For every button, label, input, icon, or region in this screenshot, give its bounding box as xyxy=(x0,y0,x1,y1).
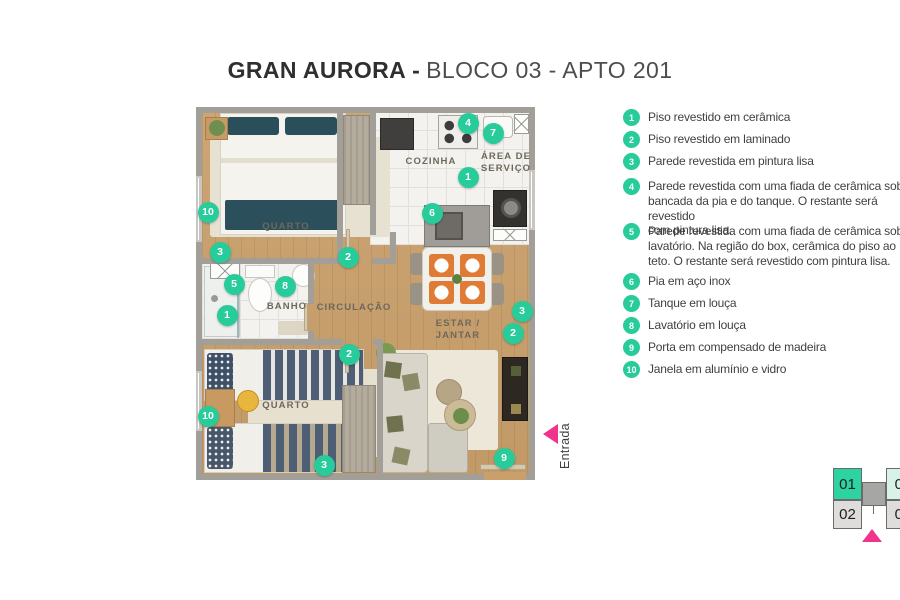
sofa-pillow xyxy=(402,373,421,392)
shower-drain xyxy=(211,295,218,302)
legend-number-badge: 3 xyxy=(623,153,640,170)
washing-machine xyxy=(493,190,527,227)
wall xyxy=(372,258,396,264)
sofa-pillow xyxy=(384,361,402,379)
bed-sheet-fold xyxy=(221,158,345,163)
legend-text: Parede revestida em pintura lisa xyxy=(648,154,814,169)
dining-chair xyxy=(490,253,504,275)
tv-rack-decor xyxy=(511,366,521,376)
wall xyxy=(370,113,376,235)
entrance-label: Entrada xyxy=(558,409,572,469)
window-service xyxy=(529,170,535,230)
legend-text: Parede revestida com uma fiada de cerâmi… xyxy=(648,224,900,268)
washer-drum xyxy=(501,198,521,218)
plan-marker-3: 3 xyxy=(314,455,335,476)
legend-text: Piso revestido em laminado xyxy=(648,132,790,147)
keyplan-unit-01[interactable]: 01 xyxy=(833,468,862,500)
legend-item: 8Lavatório em louça xyxy=(623,317,900,334)
fridge xyxy=(380,118,414,150)
legend-item: 5Parede revestida com uma fiada de cerâm… xyxy=(623,223,900,268)
bed-pillow xyxy=(227,117,279,135)
single-bed-2 xyxy=(204,423,364,473)
legend-item: 3Parede revestida em pintura lisa xyxy=(623,153,900,170)
room-label: ÁREA DE SERVIÇO xyxy=(481,151,531,175)
legend-number-badge: 4 xyxy=(623,178,640,195)
keyplan-unit-02[interactable]: 02 xyxy=(833,500,862,529)
legend-number-badge: 2 xyxy=(623,131,640,148)
title-project-name: GRAN AURORA - xyxy=(228,57,421,83)
legend-item: 2Piso revestido em laminado xyxy=(623,131,900,148)
entrance-arrow-icon xyxy=(543,424,558,444)
room-label: QUARTO xyxy=(262,400,310,412)
plan-marker-9: 9 xyxy=(494,448,515,469)
plan-marker-10: 10 xyxy=(198,406,219,427)
place-setting xyxy=(460,254,485,277)
room-label: QUARTO xyxy=(262,221,310,233)
plan-marker-3: 3 xyxy=(512,301,533,322)
plan-marker-3: 3 xyxy=(210,242,231,263)
plan-marker-7: 7 xyxy=(483,123,504,144)
plant-bedroom1 xyxy=(209,120,225,136)
room-label: BANHO xyxy=(267,301,307,313)
plan-marker-2: 2 xyxy=(339,344,360,365)
plan-marker-8: 8 xyxy=(275,276,296,297)
dining-table xyxy=(422,247,492,311)
legend-number-badge: 1 xyxy=(623,109,640,126)
legend-number-badge: 9 xyxy=(623,339,640,356)
legend-number-badge: 8 xyxy=(623,317,640,334)
legend-item: 10Janela em alumínio e vidro xyxy=(623,361,900,378)
legend-item: 1Piso revestido em cerâmica xyxy=(623,109,900,126)
plan-marker-1: 1 xyxy=(217,305,238,326)
plan-marker-5: 5 xyxy=(224,274,245,295)
double-bed xyxy=(220,113,346,235)
legend-text: Pia em aço inox xyxy=(648,274,730,289)
page-title: GRAN AURORA -BLOCO 03 - APTO 201 xyxy=(0,57,900,84)
wall xyxy=(377,345,383,474)
wardrobe-bedroom2 xyxy=(342,385,376,473)
title-unit-info: BLOCO 03 - APTO 201 xyxy=(426,57,672,83)
legend-item: 9Porta em compensado de madeira xyxy=(623,339,900,356)
keyplan-core-block xyxy=(862,482,886,506)
sofa-pillow xyxy=(392,447,411,466)
cabinet-xbox-washer xyxy=(493,229,527,241)
coffee-table-large xyxy=(444,399,476,431)
legend-number-badge: 5 xyxy=(623,223,640,240)
sofa-pillow xyxy=(386,415,404,433)
desk-chair-yellow xyxy=(237,390,259,412)
sofa xyxy=(378,353,428,473)
toilet-tank xyxy=(245,265,275,278)
tv-rack-decor xyxy=(511,404,521,414)
legend-text: Tanque em louça xyxy=(648,296,736,311)
room-label: CIRCULAÇÃO xyxy=(317,302,392,314)
legend-number-badge: 10 xyxy=(623,361,640,378)
wall xyxy=(337,113,343,264)
legend-text: Janela em alumínio e vidro xyxy=(648,362,786,377)
plant-coffee-table xyxy=(453,408,469,424)
legend-item: 7Tanque em louça xyxy=(623,295,900,312)
legend-item: 6Pia em aço inox xyxy=(623,273,900,290)
plan-marker-1: 1 xyxy=(458,167,479,188)
bed-pillow-polka xyxy=(207,427,233,469)
plan-marker-6: 6 xyxy=(422,203,443,224)
table-centerpiece xyxy=(452,274,462,284)
legend-text: Piso revestido em cerâmica xyxy=(648,110,790,125)
legend-text: Lavatório em louça xyxy=(648,318,746,333)
legend-number-badge: 7 xyxy=(623,295,640,312)
bed-pillow xyxy=(285,117,337,135)
keyplan-divider-line xyxy=(873,506,874,514)
keyplan-north-arrow-icon xyxy=(862,529,882,542)
legend-number-badge: 6 xyxy=(623,273,640,290)
page: GRAN AURORA -BLOCO 03 - APTO 201 xyxy=(0,0,900,600)
wardrobe-bedroom1 xyxy=(343,115,370,205)
cabinet-xbox-service xyxy=(514,114,529,134)
room-label: COZINHA xyxy=(406,156,457,168)
plan-marker-2: 2 xyxy=(503,323,524,344)
dining-chair xyxy=(490,283,504,305)
place-setting xyxy=(429,281,454,304)
floor-plan: QUARTOCOZINHAÁREA DE SERVIÇOBANHOCIRCULA… xyxy=(196,107,535,480)
keyplan: 01040203 xyxy=(820,455,900,555)
place-setting xyxy=(429,254,454,277)
entry-door-gap xyxy=(484,472,526,480)
keyplan-unit-04[interactable]: 04 xyxy=(886,468,900,500)
wall xyxy=(308,264,314,304)
plan-marker-10: 10 xyxy=(198,202,219,223)
tv-rack xyxy=(502,357,528,421)
plan-marker-4: 4 xyxy=(458,113,479,134)
room-label: ESTAR / JANTAR xyxy=(420,318,497,342)
legend-text: Porta em compensado de madeira xyxy=(648,340,826,355)
wall xyxy=(202,339,343,345)
place-setting xyxy=(460,281,485,304)
plan-marker-2: 2 xyxy=(338,247,359,268)
keyplan-unit-03[interactable]: 03 xyxy=(886,500,900,529)
